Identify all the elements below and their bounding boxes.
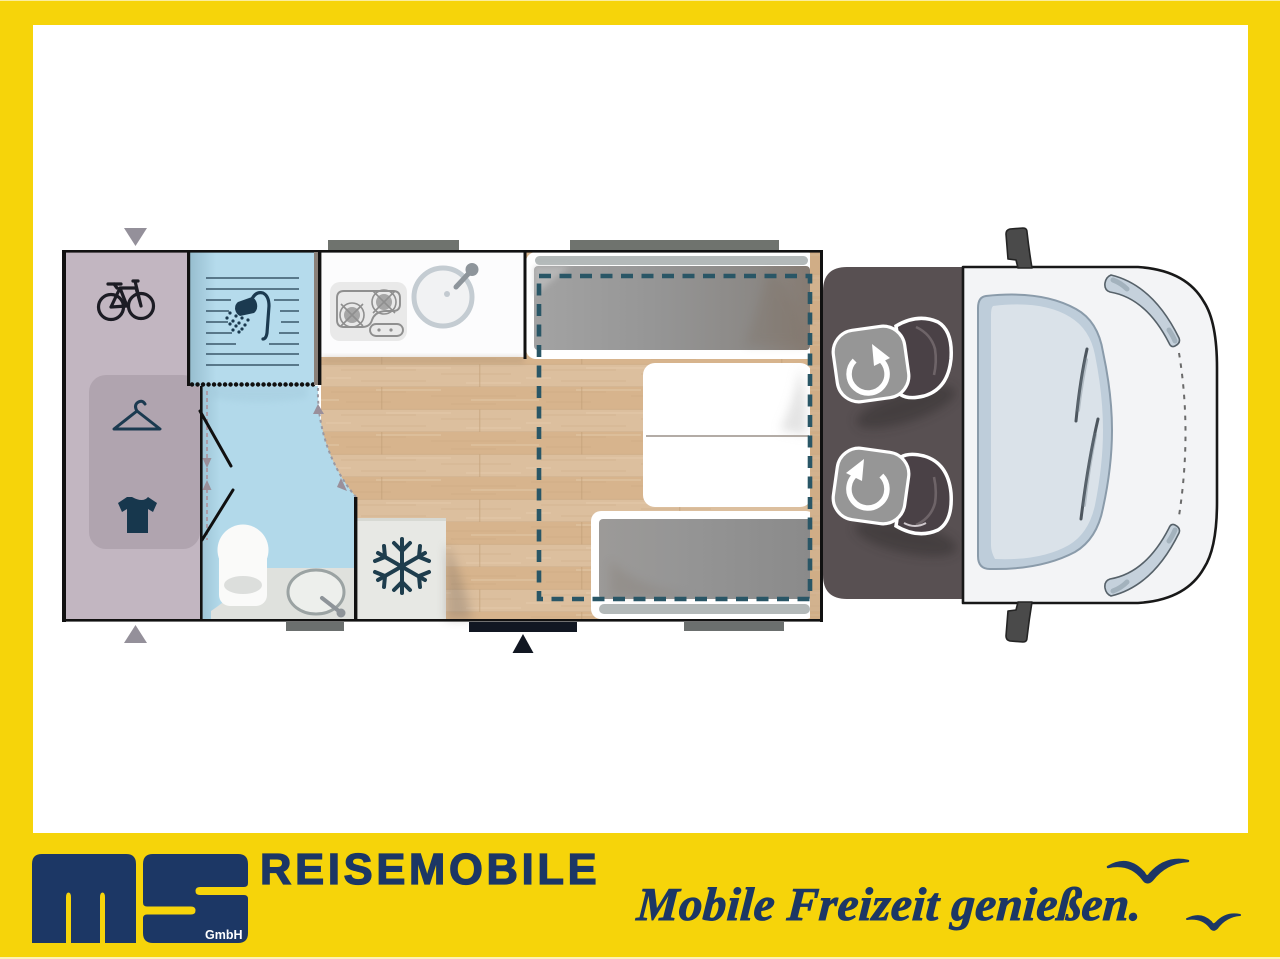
svg-text:GmbH: GmbH [205,928,243,942]
